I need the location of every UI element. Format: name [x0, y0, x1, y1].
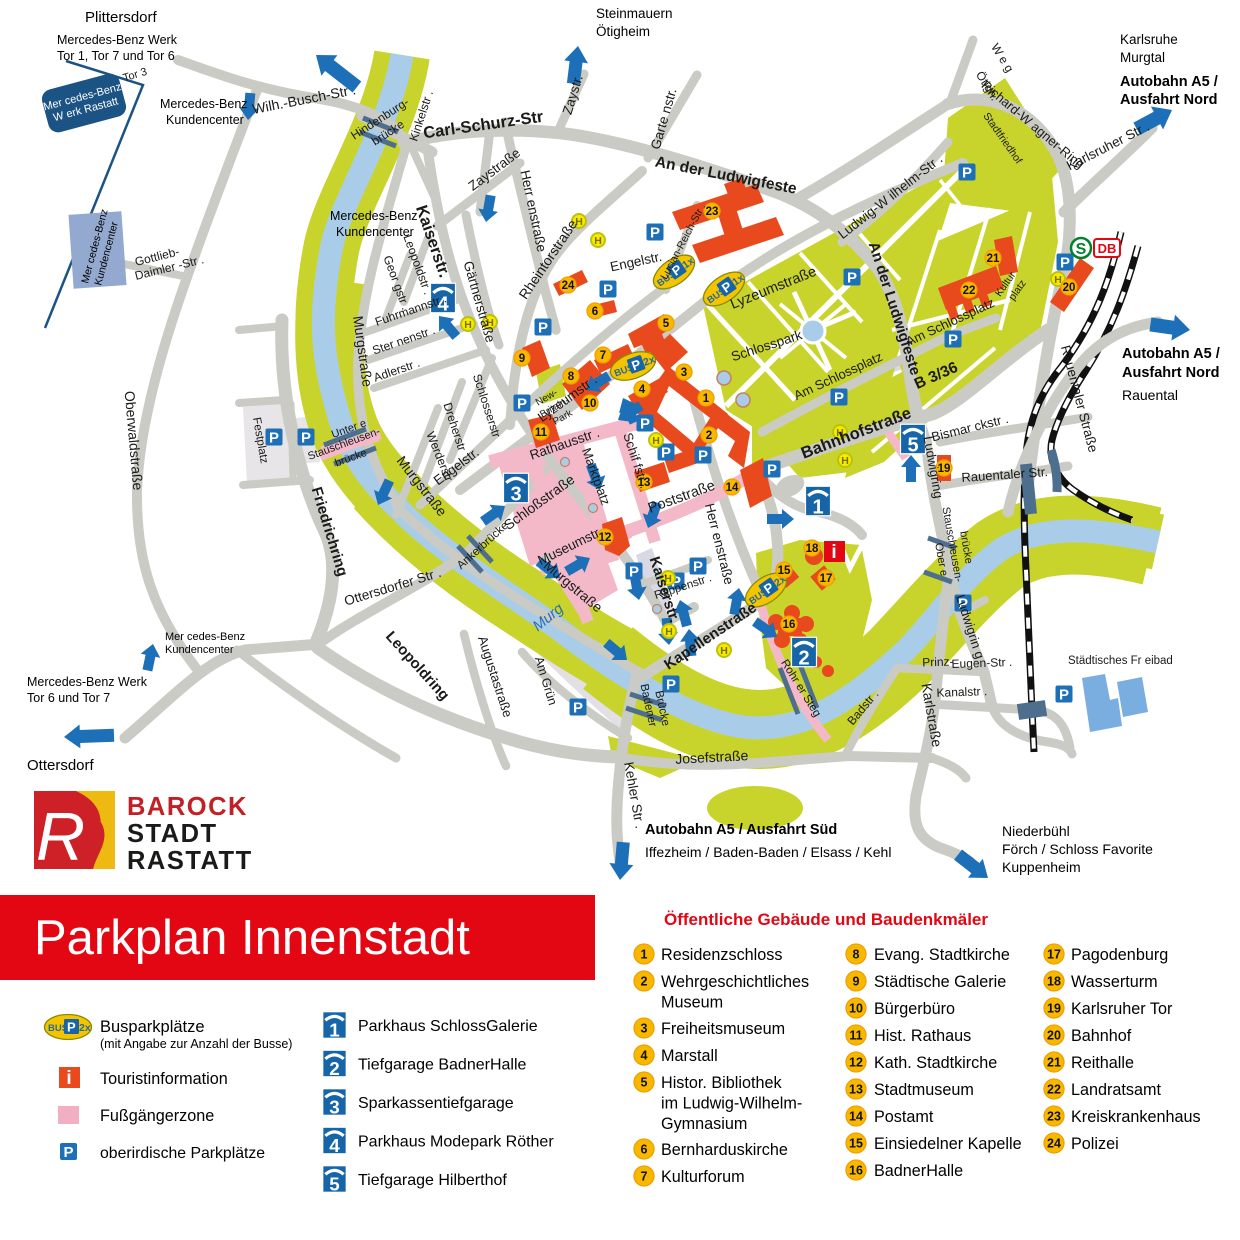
svg-text:(mit Angabe zur Anzahl der Bus: (mit Angabe zur Anzahl der Busse) — [100, 1037, 292, 1051]
svg-text:Murgtal: Murgtal — [1120, 50, 1165, 65]
svg-text:22: 22 — [1047, 1083, 1061, 1097]
svg-text:2: 2 — [641, 975, 648, 989]
svg-text:10: 10 — [849, 1002, 863, 1016]
svg-text:10: 10 — [584, 398, 597, 410]
svg-text:P: P — [301, 430, 311, 447]
svg-text:15: 15 — [849, 1137, 863, 1151]
svg-text:Mercedes-Benz Werk: Mercedes-Benz Werk — [27, 675, 148, 689]
svg-text:P: P — [640, 416, 650, 433]
svg-text:Autobahn A5 /: Autobahn A5 / — [1120, 74, 1218, 90]
svg-text:3: 3 — [510, 484, 521, 506]
svg-text:Ausfahrt Nord: Ausfahrt Nord — [1120, 92, 1217, 108]
svg-text:Busparkplätze: Busparkplätze — [100, 1018, 205, 1036]
svg-text:Niederbühl: Niederbühl — [1002, 823, 1070, 839]
svg-text:R: R — [36, 799, 85, 875]
svg-text:1: 1 — [641, 948, 648, 962]
svg-text:9: 9 — [519, 353, 525, 365]
svg-text:P: P — [603, 282, 613, 299]
svg-text:Mercedes-Benz Werk: Mercedes-Benz Werk — [57, 33, 178, 47]
svg-text:H: H — [594, 235, 602, 247]
svg-text:Tiefgarage BadnerHalle: Tiefgarage BadnerHalle — [358, 1057, 527, 1074]
svg-text:Marstall: Marstall — [661, 1047, 718, 1065]
svg-text:Wehrgeschichtliches: Wehrgeschichtliches — [661, 973, 809, 991]
svg-text:Karlsruher Tor: Karlsruher Tor — [1071, 1000, 1173, 1018]
svg-text:5: 5 — [641, 1076, 648, 1090]
svg-text:Ötigheim: Ötigheim — [596, 24, 650, 39]
svg-text:Pagodenburg: Pagodenburg — [1071, 946, 1168, 964]
svg-text:Wasserturm: Wasserturm — [1071, 973, 1158, 991]
svg-text:2: 2 — [798, 648, 809, 670]
svg-text:Bürgerbüro: Bürgerbüro — [874, 1000, 955, 1018]
svg-text:8: 8 — [853, 948, 860, 962]
svg-text:Kulturforum: Kulturforum — [661, 1168, 745, 1186]
svg-text:4: 4 — [641, 1049, 648, 1063]
svg-text:Karlsruhe: Karlsruhe — [1120, 32, 1178, 47]
svg-text:24: 24 — [562, 280, 575, 292]
svg-text:Öffentliche Gebäude und Bauden: Öffentliche Gebäude und Baudenkmäler — [664, 910, 988, 929]
svg-text:1: 1 — [703, 393, 710, 405]
svg-text:5: 5 — [663, 318, 670, 330]
svg-text:oberirdische Parkplätze: oberirdische Parkplätze — [100, 1145, 265, 1162]
svg-text:i: i — [66, 1068, 71, 1089]
svg-text:Städtisches Fr eibad: Städtisches Fr eibad — [1068, 655, 1173, 667]
svg-text:Kundencenter: Kundencenter — [165, 644, 234, 656]
svg-text:Bernharduskirche: Bernharduskirche — [661, 1141, 788, 1159]
svg-text:3: 3 — [681, 367, 687, 379]
svg-text:Eugen-Str .: Eugen-Str . — [951, 655, 1012, 671]
svg-text:Autobahn A5 / Ausfahrt Süd: Autobahn A5 / Ausfahrt Süd — [645, 822, 837, 838]
svg-text:S: S — [1076, 241, 1087, 258]
svg-text:Ausfahrt Nord: Ausfahrt Nord — [1122, 365, 1219, 381]
svg-text:H: H — [652, 435, 660, 447]
svg-text:P: P — [698, 448, 708, 465]
svg-text:P: P — [834, 390, 844, 407]
svg-text:Tor 6 und Tor 7: Tor 6 und Tor 7 — [27, 691, 110, 705]
svg-text:H: H — [464, 319, 472, 331]
svg-text:H: H — [720, 645, 728, 657]
svg-text:im Ludwig-Wilhelm-: im Ludwig-Wilhelm- — [661, 1095, 802, 1113]
svg-text:Evang. Stadtkirche: Evang. Stadtkirche — [874, 946, 1010, 964]
svg-text:H: H — [665, 626, 673, 638]
svg-text:2x: 2x — [79, 1022, 91, 1034]
svg-text:Mercedes-Benz: Mercedes-Benz — [160, 97, 248, 111]
svg-text:Parkhaus Modepark Röther: Parkhaus Modepark Röther — [358, 1134, 554, 1151]
svg-text:P: P — [948, 332, 958, 349]
svg-text:Kath. Stadtkirche: Kath. Stadtkirche — [874, 1054, 997, 1072]
svg-text:5: 5 — [329, 1173, 339, 1194]
svg-text:Autobahn A5 /: Autobahn A5 / — [1122, 346, 1220, 362]
svg-text:i: i — [831, 542, 836, 563]
svg-text:23: 23 — [1047, 1110, 1061, 1124]
svg-text:P: P — [661, 445, 671, 462]
svg-text:Steinmauern: Steinmauern — [596, 6, 673, 21]
svg-text:Städtische Galerie: Städtische Galerie — [874, 973, 1006, 991]
svg-text:18: 18 — [1047, 975, 1061, 989]
svg-text:Sparkassentiefgarage: Sparkassentiefgarage — [358, 1095, 514, 1112]
svg-text:20: 20 — [1047, 1029, 1061, 1043]
svg-text:Rauental: Rauental — [1122, 387, 1178, 403]
svg-text:P: P — [63, 1144, 73, 1161]
svg-text:RASTATT: RASTATT — [127, 847, 253, 875]
svg-text:3: 3 — [641, 1022, 648, 1036]
svg-text:19: 19 — [1047, 1002, 1061, 1016]
svg-text:P: P — [67, 1020, 76, 1035]
svg-text:P: P — [767, 462, 777, 479]
svg-text:17: 17 — [1047, 948, 1061, 962]
svg-text:Kuppenheim: Kuppenheim — [1002, 859, 1081, 875]
svg-text:18: 18 — [806, 543, 819, 555]
svg-text:4: 4 — [639, 384, 646, 396]
svg-text:4: 4 — [329, 1135, 340, 1156]
svg-text:Prinz-: Prinz- — [922, 654, 954, 669]
svg-text:1: 1 — [812, 497, 823, 519]
svg-text:3: 3 — [329, 1096, 339, 1117]
svg-text:Stadtmuseum: Stadtmuseum — [874, 1081, 974, 1099]
svg-text:1: 1 — [329, 1019, 339, 1040]
svg-text:Tor 1, Tor 7 und Tor 6: Tor 1, Tor 7 und Tor 6 — [57, 49, 175, 63]
svg-text:15: 15 — [778, 565, 791, 577]
svg-text:24: 24 — [1047, 1137, 1061, 1151]
svg-text:13: 13 — [849, 1083, 863, 1097]
svg-text:5: 5 — [907, 435, 918, 457]
svg-text:P: P — [666, 677, 676, 694]
svg-text:6: 6 — [592, 306, 598, 318]
svg-text:P: P — [1059, 687, 1069, 704]
svg-text:7: 7 — [641, 1170, 648, 1184]
svg-text:Einsiedelner Kapelle: Einsiedelner Kapelle — [874, 1135, 1022, 1153]
svg-text:9: 9 — [853, 975, 860, 989]
svg-text:Bahnhof: Bahnhof — [1071, 1027, 1132, 1045]
svg-text:Histor. Bibliothek: Histor. Bibliothek — [661, 1074, 782, 1092]
svg-text:20: 20 — [1063, 282, 1076, 294]
svg-text:17: 17 — [820, 573, 833, 585]
svg-text:Ottersdorf: Ottersdorf — [27, 757, 95, 774]
svg-text:H: H — [1054, 274, 1062, 286]
svg-text:P: P — [629, 564, 639, 581]
svg-text:Förch / Schloss Favorite: Förch / Schloss Favorite — [1002, 841, 1153, 857]
svg-text:P: P — [1060, 255, 1070, 272]
svg-text:21: 21 — [1047, 1056, 1061, 1070]
svg-text:22: 22 — [963, 285, 976, 297]
svg-text:BadnerHalle: BadnerHalle — [874, 1162, 963, 1180]
svg-text:11: 11 — [535, 427, 548, 439]
svg-text:P: P — [269, 430, 279, 447]
svg-text:Kundencenter: Kundencenter — [336, 225, 414, 239]
svg-text:Residenzschloss: Residenzschloss — [661, 946, 782, 964]
svg-text:16: 16 — [849, 1164, 863, 1178]
svg-text:P: P — [962, 165, 972, 182]
svg-text:Parkhaus SchlossGalerie: Parkhaus SchlossGalerie — [358, 1018, 538, 1035]
svg-text:P: P — [573, 700, 583, 717]
svg-text:P: P — [517, 396, 527, 413]
svg-text:Landratsamt: Landratsamt — [1071, 1081, 1161, 1099]
svg-text:2: 2 — [329, 1058, 339, 1079]
svg-text:Fußgängerzone: Fußgängerzone — [100, 1107, 214, 1125]
svg-text:21: 21 — [987, 253, 1000, 265]
svg-text:Freiheitsmuseum: Freiheitsmuseum — [661, 1020, 785, 1038]
svg-text:11: 11 — [849, 1029, 862, 1043]
svg-text:Polizei: Polizei — [1071, 1135, 1119, 1153]
svg-text:Reithalle: Reithalle — [1071, 1054, 1134, 1072]
svg-text:Gymnasium: Gymnasium — [661, 1115, 747, 1133]
svg-text:H: H — [841, 455, 849, 467]
svg-text:16: 16 — [783, 619, 796, 631]
svg-text:7: 7 — [600, 350, 606, 362]
svg-text:14: 14 — [726, 482, 739, 494]
svg-text:Museum: Museum — [661, 994, 723, 1012]
svg-text:P: P — [847, 270, 857, 287]
svg-text:P: P — [650, 225, 660, 242]
svg-text:Tiefgarage Hilberthof: Tiefgarage Hilberthof — [358, 1172, 507, 1189]
svg-text:P: P — [693, 559, 703, 576]
svg-text:14: 14 — [849, 1110, 863, 1124]
svg-text:Plittersdorf: Plittersdorf — [85, 9, 158, 26]
svg-text:Kundencenter: Kundencenter — [166, 113, 244, 127]
svg-text:2: 2 — [706, 430, 712, 442]
svg-text:6: 6 — [641, 1143, 648, 1157]
svg-text:P: P — [538, 320, 548, 337]
svg-text:Touristinformation: Touristinformation — [100, 1070, 228, 1088]
svg-text:8: 8 — [568, 371, 575, 383]
svg-text:STADT: STADT — [127, 820, 218, 848]
svg-text:Mercedes-Benz: Mercedes-Benz — [330, 209, 418, 223]
svg-text:Kreiskrankenhaus: Kreiskrankenhaus — [1071, 1108, 1201, 1126]
svg-text:Hist. Rathaus: Hist. Rathaus — [874, 1027, 971, 1045]
svg-text:Mer cedes-Benz: Mer cedes-Benz — [165, 631, 245, 643]
svg-text:DB: DB — [1098, 241, 1117, 256]
svg-text:12: 12 — [849, 1056, 863, 1070]
svg-text:Kanalstr .: Kanalstr . — [936, 684, 987, 700]
svg-text:Parkplan Innenstadt: Parkplan Innenstadt — [34, 911, 470, 965]
svg-text:Postamt: Postamt — [874, 1108, 934, 1126]
svg-text:BAROCK: BAROCK — [127, 793, 248, 821]
svg-text:Iffezheim / Baden-Baden / Elsa: Iffezheim / Baden-Baden / Elsass / Kehl — [645, 844, 891, 860]
